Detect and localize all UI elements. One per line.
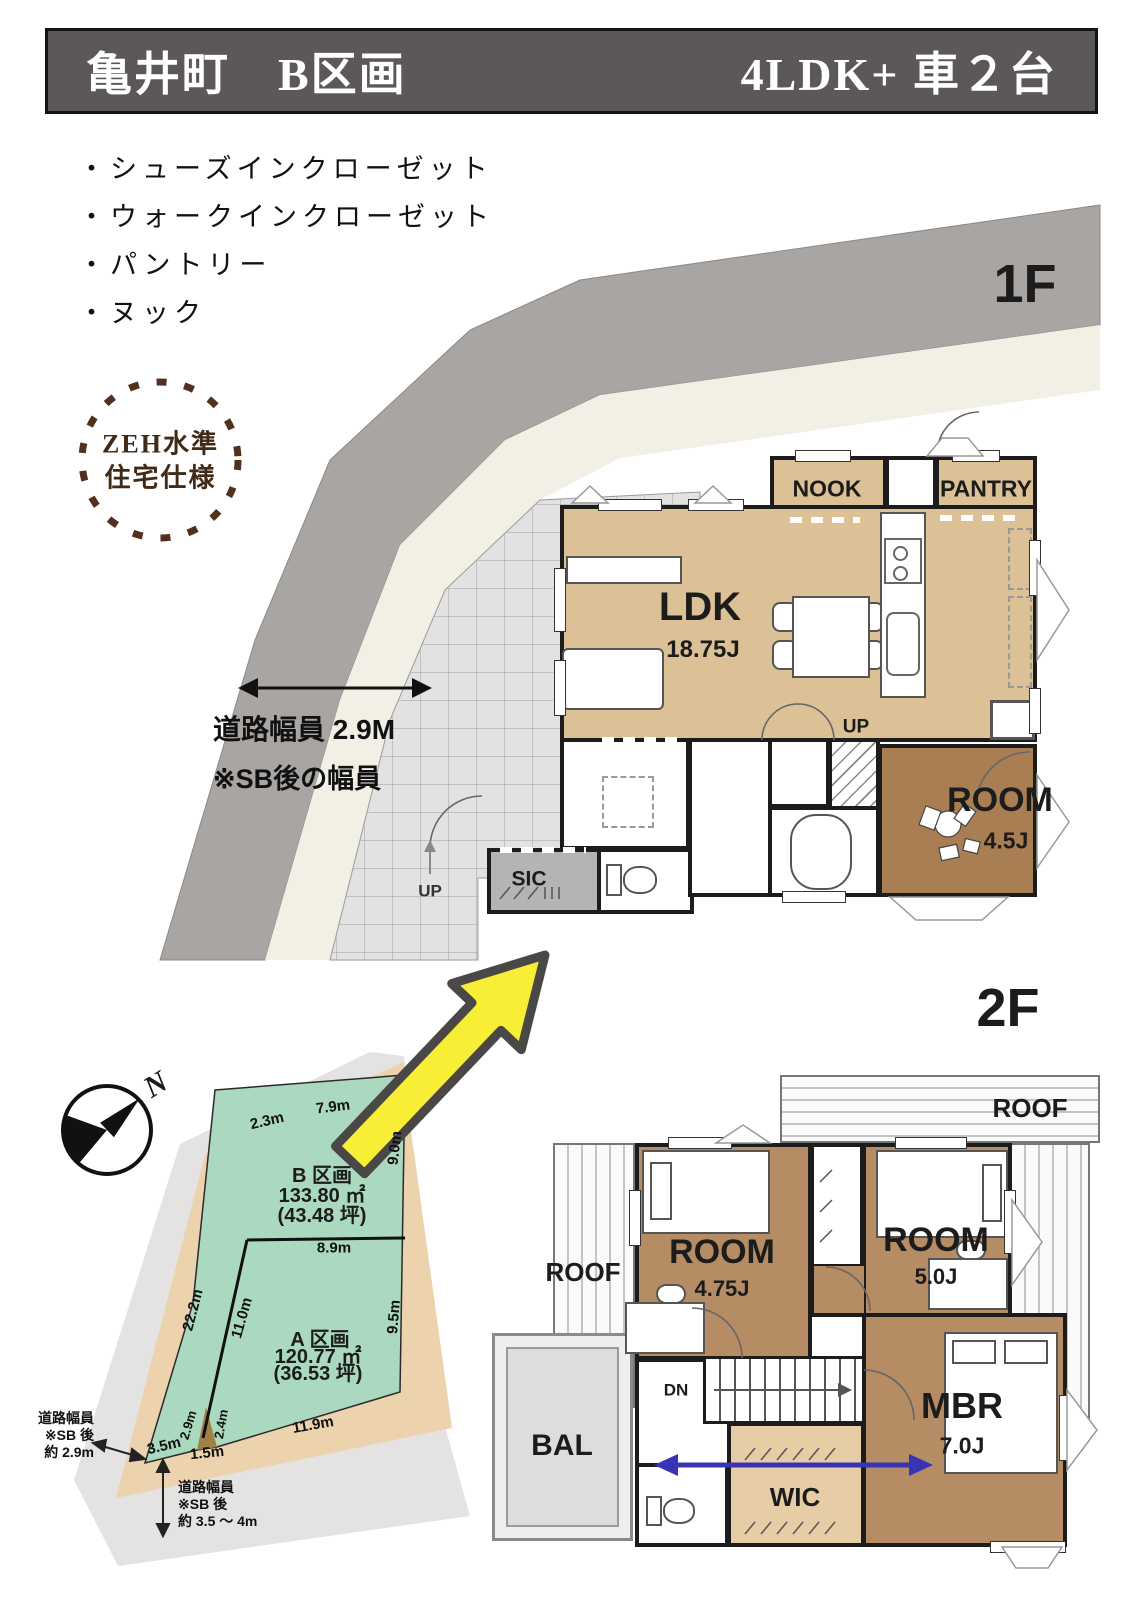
- feature-label: シューズインクローゼット: [110, 147, 493, 186]
- feature-label: パントリー: [110, 243, 271, 282]
- zeh-badge-line1: ZEH水準: [102, 424, 219, 461]
- window: [688, 499, 744, 511]
- window: [1029, 540, 1041, 596]
- porch-up-arrow-icon: [424, 840, 436, 874]
- road-note-left: 道路幅員 ※SB 後 約 2.9m: [24, 1410, 94, 1461]
- room-landing-1f: [768, 738, 830, 808]
- tv-board: [566, 556, 682, 584]
- pillow: [1004, 1340, 1048, 1364]
- direction-arrow-icon: [336, 955, 546, 1174]
- dim-label: 11.9m: [291, 1414, 335, 1436]
- window: [782, 891, 846, 903]
- label-up-stairs: UP: [843, 718, 869, 737]
- bullet: ・: [78, 195, 110, 234]
- parcel-b-name: B 区画: [292, 1166, 352, 1186]
- site-road: [74, 1052, 470, 1566]
- feature-item: ・シューズインクローゼット: [78, 142, 494, 190]
- pillow: [952, 1340, 996, 1364]
- title-bar: 亀井町 B区画 4LDK+ 車２台: [45, 28, 1098, 114]
- toilet-bowl: [663, 1498, 695, 1524]
- label-room45: ROOM: [947, 783, 1053, 817]
- floor2-label: 2F: [976, 981, 1039, 1035]
- dim-label: 11.0m: [229, 1296, 255, 1340]
- label-pantry: PANTRY: [940, 478, 1032, 501]
- dim-label: 22.2m: [180, 1288, 206, 1333]
- label-room1-size: 4.75J: [694, 1278, 749, 1300]
- dim-label: 8.9m: [317, 1241, 351, 1256]
- zeh-badge-line2: 住宅仕様: [104, 458, 216, 495]
- feature-label: ヌック: [110, 291, 206, 330]
- bullet: ・: [78, 243, 110, 282]
- dim-label: 2.3m: [249, 1110, 286, 1132]
- road-note-bottom-l3: 約 3.5 〜 4m: [178, 1513, 257, 1530]
- road-note-left-l1: 道路幅員: [24, 1410, 94, 1427]
- window: [952, 450, 1000, 462]
- dim-label: 9.5m: [385, 1299, 403, 1334]
- window: [1059, 1395, 1071, 1461]
- parcel-b-tsubo: (43.48 坪): [278, 1206, 367, 1226]
- window: [554, 568, 566, 632]
- road-note-left-l2: ※SB 後: [24, 1427, 94, 1444]
- label-mbr: MBR: [921, 1388, 1003, 1424]
- title-right: 4LDK+ 車２台: [741, 38, 1057, 104]
- cupboard-space: [1008, 596, 1032, 688]
- label-mbr-size: 7.0J: [940, 1435, 985, 1458]
- bullet: ・: [78, 147, 110, 186]
- window: [795, 450, 851, 462]
- site-parcel-green: [145, 1075, 405, 1463]
- dim-label: 2.4m: [212, 1408, 230, 1439]
- road-width-note-line2: ※SB後の幅員: [213, 766, 381, 793]
- feature-item: ・ウォークインクローゼット: [78, 190, 494, 238]
- site-setback: [116, 1062, 452, 1498]
- road-width-note-line1: 道路幅員 2.9M: [213, 716, 395, 744]
- label-up-porch: UP: [418, 883, 442, 900]
- pillow: [650, 1162, 672, 1220]
- toilet-bowl: [623, 866, 657, 894]
- dining-table: [792, 596, 870, 678]
- label-ldk-size: 18.75J: [666, 638, 739, 662]
- floor-plan-flyer: 1F NOOK PANTRY LDK 18.75J UP SIC ROOM 4.…: [0, 0, 1141, 1600]
- sofa: [562, 648, 664, 710]
- label-dn: DN: [664, 1382, 689, 1399]
- window: [668, 1137, 732, 1149]
- zeh-badge: ZEH水準 住宅仕様: [68, 368, 253, 553]
- stove-burner: [893, 546, 908, 561]
- feature-list: ・シューズインクローゼット ・ウォークインクローゼット ・パントリー ・ヌック: [78, 142, 494, 334]
- label-room2-size: 5.0J: [915, 1266, 958, 1288]
- dim-label: 9.0m: [385, 1130, 404, 1166]
- stairs-2f: [703, 1356, 865, 1424]
- pillow: [982, 1164, 1002, 1222]
- window: [990, 1541, 1066, 1553]
- site-plan: [74, 1052, 470, 1566]
- desk: [625, 1302, 705, 1354]
- parcel-a-tsubo: (36.53 坪): [274, 1364, 363, 1384]
- road-width-arrow-icon: [238, 678, 432, 698]
- dim-label: 1.5m: [189, 1444, 225, 1462]
- stairs-1f: [828, 738, 880, 810]
- label-roof-left: ROOF: [545, 1259, 620, 1285]
- label-roof-top: ROOF: [992, 1095, 1067, 1121]
- feature-label: ウォークインクローゼット: [110, 195, 494, 234]
- compass-icon: [63, 1086, 151, 1174]
- closet-2f: [810, 1143, 864, 1268]
- window: [1004, 1190, 1016, 1254]
- feature-item: ・パントリー: [78, 238, 494, 286]
- window: [895, 1137, 967, 1149]
- feature-item: ・ヌック: [78, 286, 494, 334]
- toilet-tank: [606, 864, 622, 896]
- label-ldk: LDK: [659, 587, 741, 627]
- dim-label: 3.5m: [146, 1435, 183, 1457]
- room-corridor-1f: [688, 738, 774, 897]
- window: [554, 660, 566, 716]
- road-note-bottom: 道路幅員 ※SB 後 約 3.5 〜 4m: [178, 1479, 257, 1530]
- toilet-tank: [646, 1496, 662, 1526]
- room-50j-ext: [810, 1266, 864, 1317]
- label-room1: ROOM: [669, 1235, 775, 1269]
- road-note-bottom-l2: ※SB 後: [178, 1496, 257, 1513]
- road-note-left-l3: 約 2.9m: [24, 1444, 94, 1461]
- title-left: 亀井町 B区画: [86, 38, 407, 104]
- room-45j: [878, 744, 1037, 897]
- parcel-b-area: 133.80 ㎡: [279, 1186, 366, 1206]
- window: [598, 499, 662, 511]
- floor1-label: 1F: [993, 257, 1056, 311]
- road-note-bottom-l1: 道路幅員: [178, 1479, 257, 1496]
- bullet: ・: [78, 291, 110, 330]
- window: [629, 1190, 641, 1246]
- bathtub: [790, 814, 852, 890]
- north-label: N: [139, 1067, 173, 1104]
- stove-burner: [893, 566, 908, 581]
- kitchen-sink: [886, 612, 920, 676]
- chair: [656, 1284, 686, 1304]
- label-nook: NOOK: [793, 478, 862, 501]
- window: [1029, 688, 1041, 734]
- dim-label: 2.9m: [177, 1409, 198, 1441]
- label-bal: BAL: [531, 1431, 593, 1461]
- washer-space: [602, 776, 654, 828]
- label-sic: SIC: [511, 869, 546, 890]
- label-room45-size: 4.5J: [984, 830, 1029, 853]
- dim-label: 7.9m: [315, 1097, 351, 1116]
- label-room2: ROOM: [883, 1223, 989, 1257]
- label-wic: WIC: [770, 1484, 821, 1510]
